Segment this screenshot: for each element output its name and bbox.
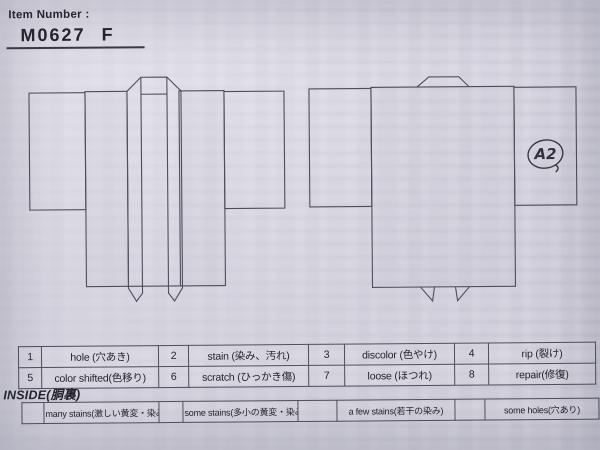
front-right-sleeve: [224, 91, 285, 208]
inspection-sheet: Item Number : M0627F: [0, 0, 600, 450]
front-collar-band-left: [127, 77, 143, 301]
stain-scale-label: some stains(多小の黄変・染み): [183, 401, 298, 423]
front-right-body-panel: [179, 91, 226, 286]
back-left-sleeve: [309, 88, 372, 206]
code-number: 7: [309, 365, 345, 386]
stain-scale-table: many stains(激しい黄変・染み) some stains(多小の黄変・…: [21, 398, 599, 425]
back-hem-vent-right: [455, 287, 469, 301]
condition-code-table: 1 hole (穴あき) 2 stain (染み、汚れ) 3 discolor …: [18, 342, 596, 390]
code-label: loose (ほつれ): [345, 364, 455, 386]
annotation-text: A2: [533, 145, 556, 163]
front-left-sleeve: [29, 93, 86, 210]
kimono-front-diagram: [29, 76, 286, 302]
code-number: 4: [454, 343, 488, 364]
stain-scale-label: many stains(激しい黄変・染み): [44, 402, 159, 424]
code-number: 8: [455, 364, 489, 385]
handwritten-annotation: A2: [526, 137, 566, 172]
code-number: 3: [308, 344, 344, 365]
code-label: rip (裂け): [488, 342, 595, 364]
stain-scale-marker-cell[interactable]: [22, 403, 44, 424]
code-number: 1: [18, 347, 41, 368]
code-label: scratch (ひっかき傷): [189, 365, 309, 387]
kimono-back-diagram: [309, 76, 578, 302]
code-number: 2: [158, 345, 188, 366]
front-collar-top: [127, 77, 181, 91]
back-hem-vent-left: [420, 287, 434, 301]
stain-scale-row: many stains(激しい黄変・染み) some stains(多小の黄変・…: [22, 398, 599, 424]
back-collar: [417, 77, 469, 87]
stain-scale-label: some holes(穴あり): [485, 398, 599, 420]
annotation-circle-tail: [556, 165, 559, 172]
condition-row-2: 5 color shifted(色移り) 6 scratch (ひっかき傷) 7…: [19, 363, 596, 389]
code-label: stain (染み、汚れ): [188, 344, 308, 366]
code-label: hole (穴あき): [41, 346, 158, 368]
stain-scale-label: a few stains(若干の染み): [337, 399, 455, 421]
code-number: 6: [159, 366, 189, 387]
code-label: discolor (色やけ): [344, 343, 454, 365]
stain-scale-marker-cell[interactable]: [159, 401, 183, 422]
inside-section-label: INSIDE(胴裏): [3, 384, 80, 404]
code-label: repair(修復): [489, 363, 596, 385]
stain-scale-marker-cell[interactable]: [455, 399, 485, 420]
front-left-body-panel: [85, 91, 129, 286]
stain-scale-marker-cell[interactable]: [298, 400, 337, 421]
back-body-panel: [371, 86, 516, 287]
